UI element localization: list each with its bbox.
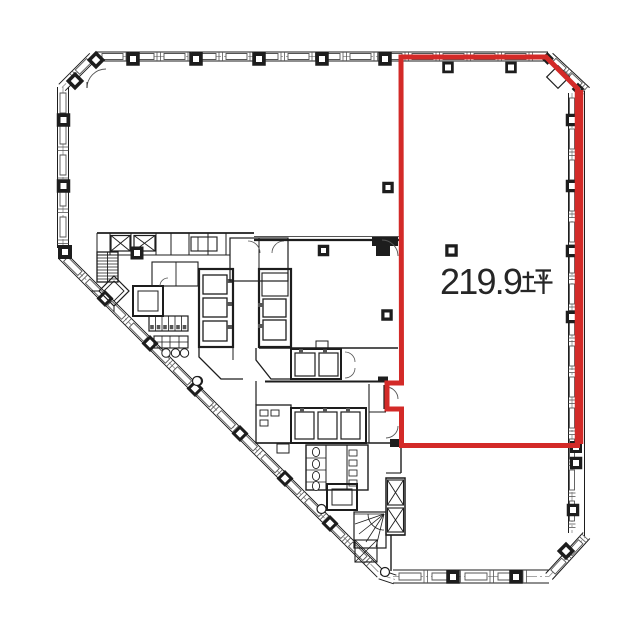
- svg-text:219.9: 219.9: [440, 261, 522, 302]
